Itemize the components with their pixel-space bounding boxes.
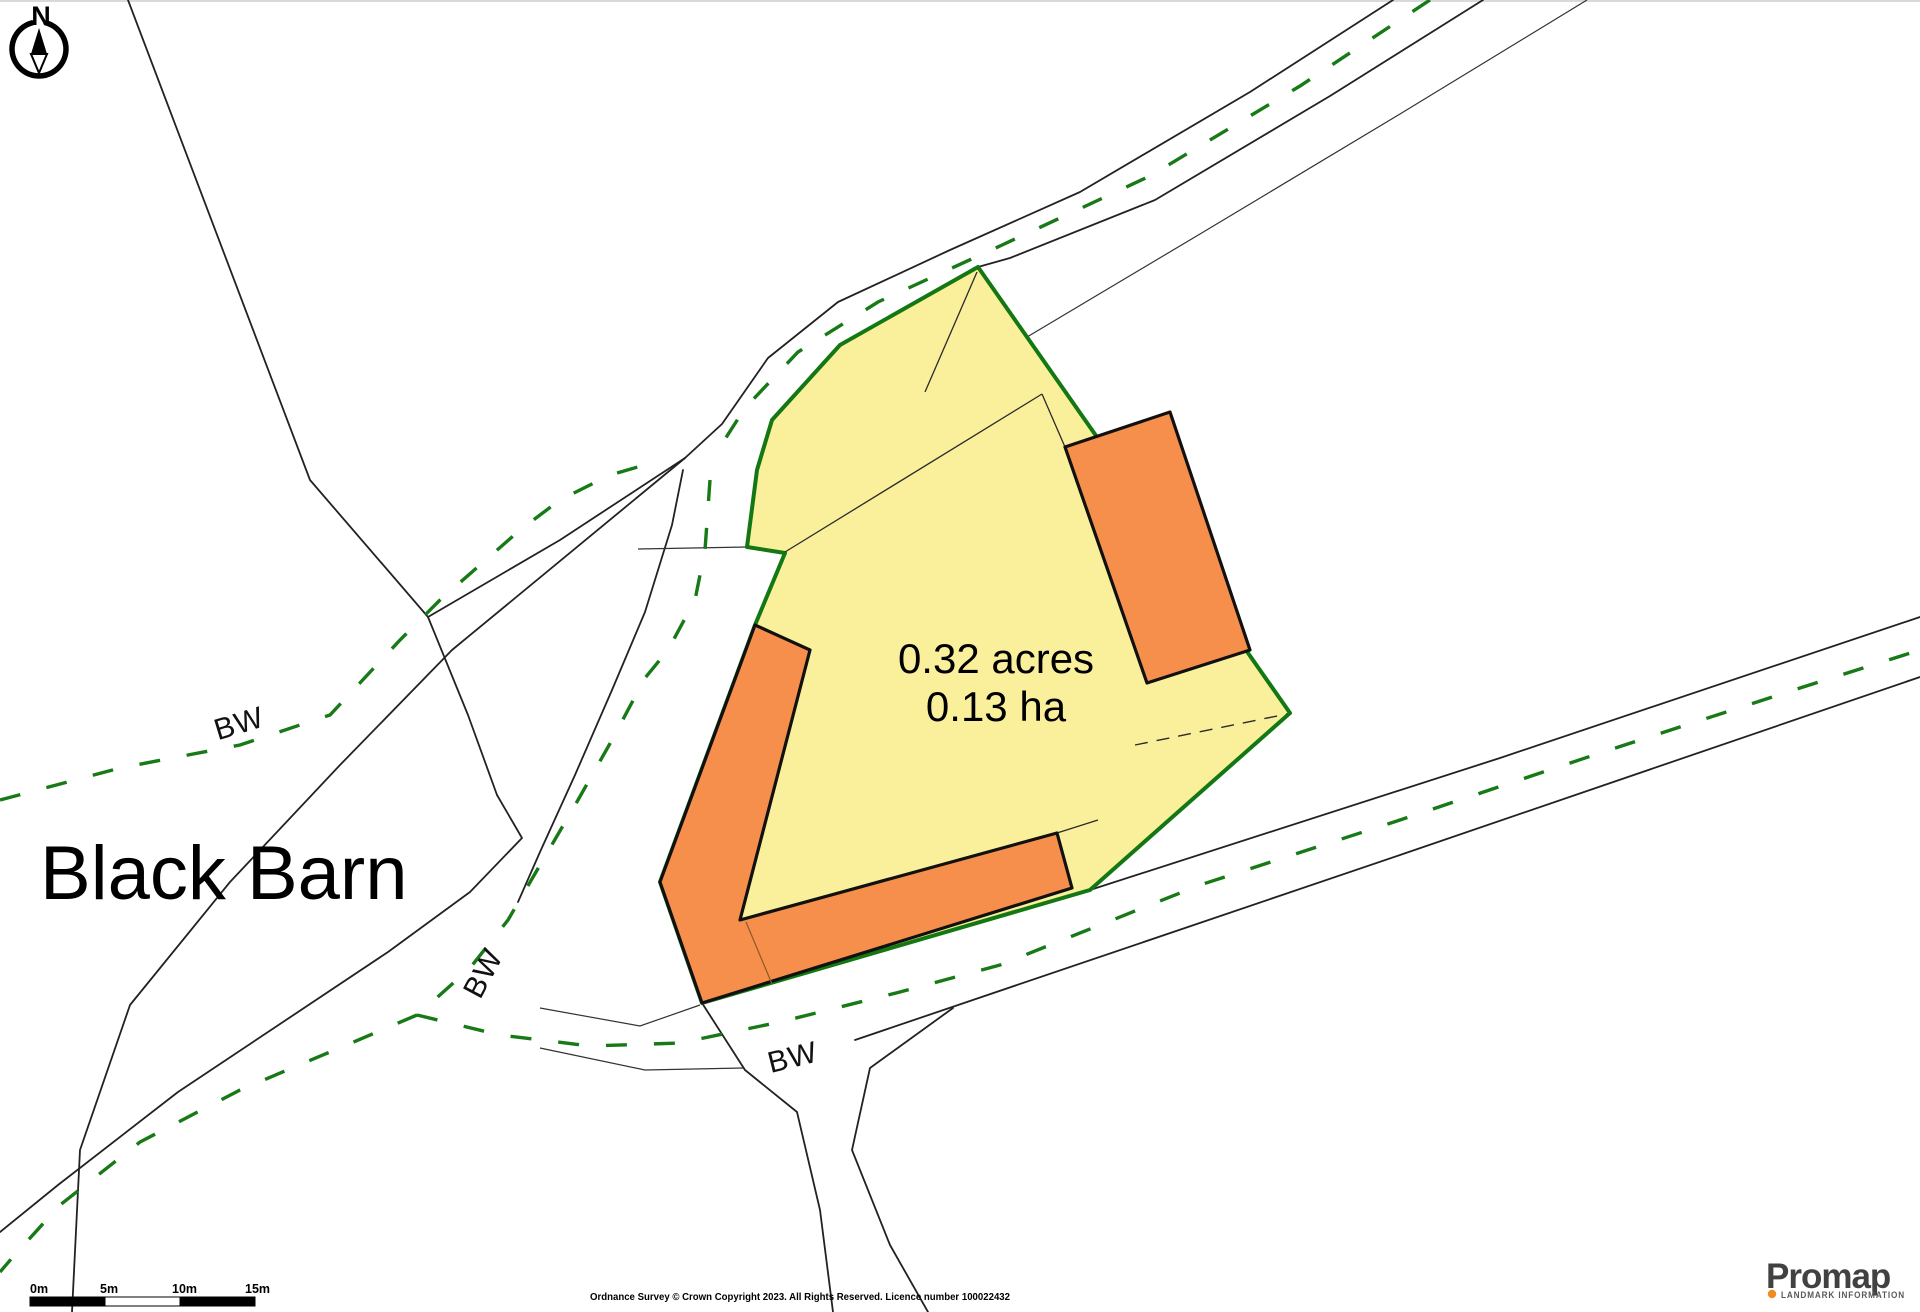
junction-edge-west <box>428 458 685 617</box>
bridleway-label-southwest: BW <box>457 944 510 1004</box>
map-svg: Black Barn 0.32 acres 0.13 ha BW BW BW N… <box>0 0 1920 1312</box>
north-arrow-icon: N <box>12 1 66 76</box>
ne-field-line <box>1022 0 1587 340</box>
track-link-north <box>540 1005 700 1026</box>
scale-tick-label: 15m <box>245 1282 270 1296</box>
promap-logo: Promap LANDMARK INFORMATION <box>1766 1257 1905 1301</box>
track-link-south <box>540 1048 743 1070</box>
field-boundary-line <box>128 0 497 795</box>
map-export-canvas: Black Barn 0.32 acres 0.13 ha BW BW BW N… <box>0 0 1920 1312</box>
bridleway-south-steep <box>417 480 710 1015</box>
scale-tick-label: 10m <box>172 1282 197 1296</box>
south-track-east-edge <box>852 1008 953 1312</box>
bridleway-west <box>0 462 655 800</box>
top-edge-divider <box>0 0 1920 2</box>
scale-tick-label: 5m <box>100 1282 118 1296</box>
plot-west-road-edge <box>518 470 683 902</box>
plot-area-acres: 0.32 acres <box>898 635 1094 682</box>
promap-tagline: LANDMARK INFORMATION <box>1781 1290 1905 1301</box>
plot-area-label: 0.32 acres 0.13 ha <box>898 635 1094 730</box>
landmark-dot-icon <box>1768 1290 1776 1298</box>
bridleway-label-west: BW <box>210 701 268 747</box>
copyright-text: Ordnance Survey © Crown Copyright 2023. … <box>590 1291 1010 1303</box>
plot-area-hectares: 0.13 ha <box>926 683 1067 730</box>
ne-road-lower-edge <box>978 0 1483 267</box>
scale-bar: 0m 5m 10m 15m <box>30 1282 270 1306</box>
compass-north-label: N <box>31 1 51 31</box>
place-label: Black Barn <box>40 831 408 916</box>
bridleway-southwest <box>0 1015 417 1272</box>
scale-tick-label: 0m <box>30 1282 48 1296</box>
fence-line-to-notch <box>638 547 747 549</box>
bridleway-label-south: BW <box>764 1036 821 1080</box>
